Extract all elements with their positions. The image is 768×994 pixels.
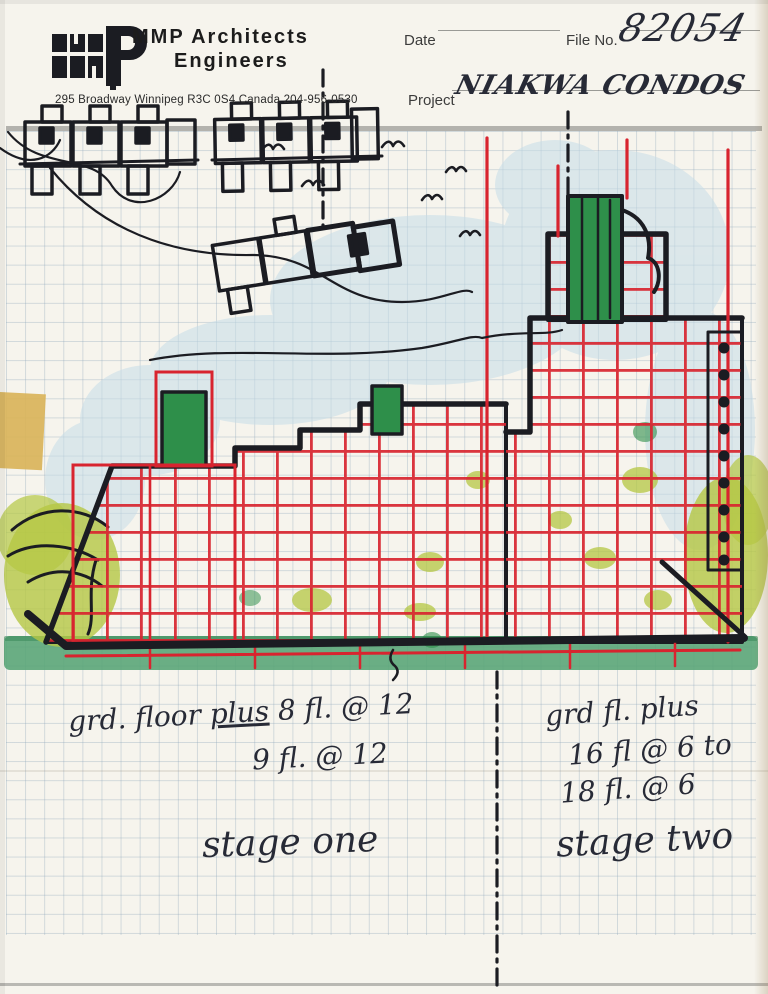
scan-edge-shadow-right <box>754 0 768 994</box>
project-label: Project <box>408 92 455 109</box>
date-label: Date <box>404 32 436 49</box>
scan-edge-shadow-top <box>0 0 768 4</box>
firm-name-line1: MMP Architects <box>132 26 309 49</box>
scan-edge-shadow-left <box>0 0 5 994</box>
file-no-value: 82054 <box>615 6 752 50</box>
firm-name-line2: Engineers <box>174 50 289 73</box>
file-no-label: File No. <box>566 32 618 49</box>
project-value: NIAKWA CONDOS <box>452 70 749 101</box>
note-underlined: plus <box>209 695 270 731</box>
date-line <box>438 30 560 31</box>
firm-address: 295 Broadway Winnipeg R3C 0S4 Canada 204… <box>55 94 358 106</box>
tape-patch <box>0 392 46 471</box>
stage-one-label: stage one <box>201 819 379 866</box>
scanned-sketch-page: { "letterhead": { "firm_name_line1": "MM… <box>0 0 768 994</box>
